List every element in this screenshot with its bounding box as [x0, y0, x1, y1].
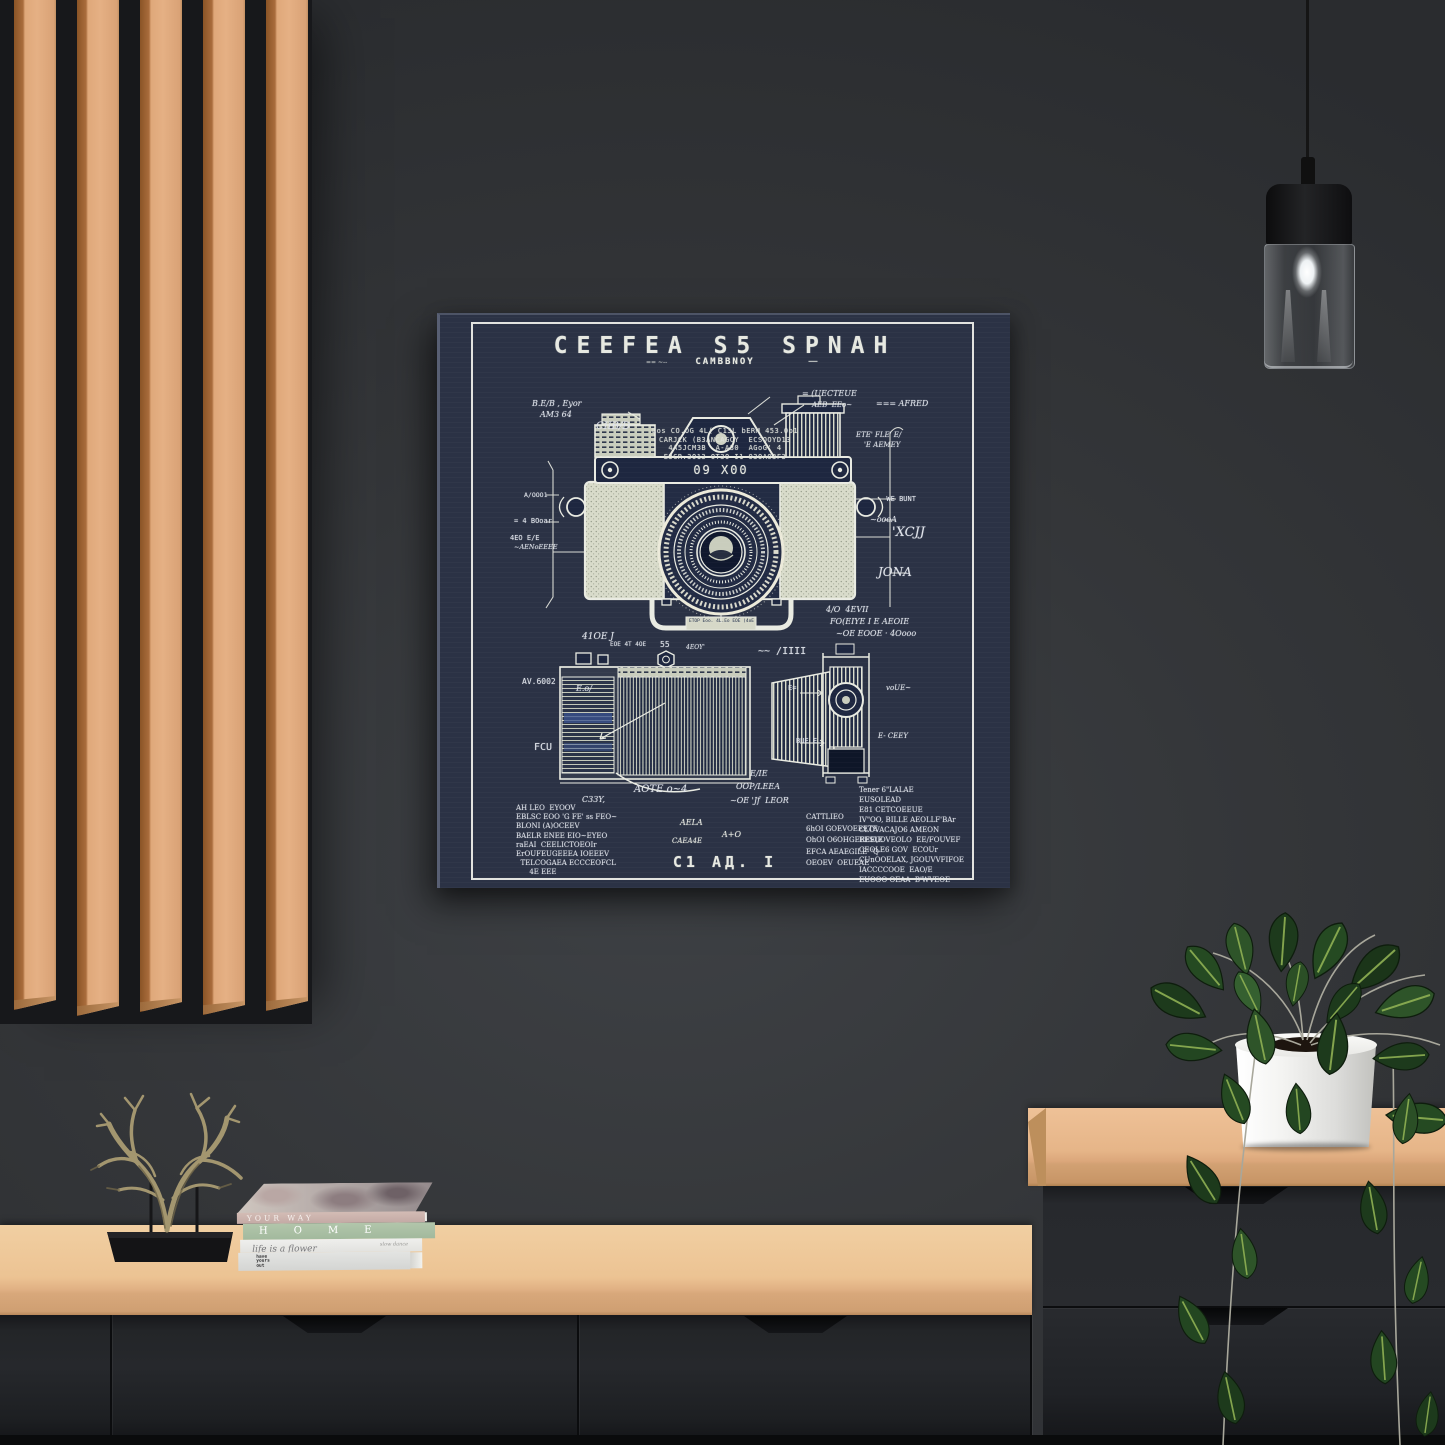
footer-line: IV"OO, BILLE AEOLLF'BAr: [859, 815, 964, 825]
poster-figure-mark: C1 AД. I: [665, 853, 785, 871]
poster-annotation: E=: [788, 684, 796, 692]
poster-annotation: = 4 BOoar: [514, 517, 552, 525]
poster-annotation: ~oooA: [870, 515, 897, 524]
poster-annotation: AEB EEo~: [812, 401, 852, 409]
poster-annotation: BUE E: [796, 737, 817, 745]
poster-annotation: ~AENoEEEE: [514, 543, 557, 551]
sideboard-drawer-fronts: [0, 1315, 1032, 1445]
lamp-cord: [1306, 0, 1309, 160]
footer-line: BAELR ENEE EIO~EYEO: [516, 832, 617, 841]
pot-soil: [1271, 1037, 1341, 1052]
book-top-cover: [237, 1182, 433, 1214]
footer-center-a: AELA: [680, 818, 703, 827]
lamp-glass-rim: [1264, 358, 1353, 368]
camera-blueprint-canvas: CEEFEA S5 SPNAH == ~-- CAMBBNOY — Los CO…: [437, 313, 1010, 888]
poster-annotation: 'XCJJ: [892, 525, 925, 540]
poster-footer-left-column: AH LEO EYOOVEBLSC EOO 'G FE' ss FEO~BLON…: [516, 804, 617, 878]
poster-title: CEEFEA S5 SPNAH: [440, 333, 1010, 359]
poster-annotation: 4EOY': [686, 644, 705, 651]
poster-annotation: E/IE: [750, 769, 768, 778]
poster-annotation: ETE' FLE' E/: [856, 431, 901, 439]
footer-line: Tener 6"LALAE: [859, 785, 964, 795]
right-cabinet-front: [1043, 1186, 1445, 1445]
poster-annotation: C33Y,: [582, 795, 605, 804]
wood-slat: [266, 0, 308, 1011]
room-photo: { "poster": { "title": "CEEFEA S5 SPNAH"…: [0, 0, 1445, 1445]
poster-annotation: AM3 64: [540, 410, 572, 419]
footer-line: EUSOLEAD: [859, 795, 964, 805]
poster-annotation: 55: [660, 640, 670, 649]
poster-annotation: JONA: [878, 565, 912, 579]
footer-line: 4E EEE: [516, 868, 617, 877]
drawer-handle-notch: [1185, 1187, 1288, 1204]
poster-annotation: EOE 4T 4OE: [610, 641, 646, 648]
poster-annotation: AV.6002: [522, 677, 556, 686]
lamp-cap: [1266, 184, 1352, 245]
wood-slat: [77, 0, 119, 1016]
poster-annotation: 4EO E/E: [510, 534, 540, 542]
lamp-bulb: [1292, 246, 1322, 298]
footer-line: BLONI (A)OCEEV: [516, 822, 617, 831]
wood-slat: [203, 0, 245, 1015]
poster-annotation: FO(EIYE I E AEOIE: [830, 617, 909, 626]
footer-line: CUnOOELAX, JGOUVVFIFOE: [859, 855, 964, 865]
poster-footer-right-column: Tener 6"LALAEEUSOLEADE81 CETCOEEUEIV"OO,…: [859, 785, 964, 885]
wood-slat-panel: [0, 0, 312, 1024]
poster-annotation: ~OE EOOE · 4Oooo: [836, 629, 916, 638]
poster-annotation: OOP/LEEA: [736, 782, 780, 791]
poster-annotation: === AFRED: [876, 399, 928, 408]
book-stack: YOUR WAY HOME life is a flower slow danc…: [237, 1182, 448, 1274]
poster-annotation: ~~ /IIII: [758, 646, 806, 657]
footer-line: EESUOVEOLO EE/FOUVEF: [859, 835, 964, 845]
footer-center-c: CAEA4E: [672, 837, 702, 845]
footer-line: E81 CETCOEEUE: [859, 805, 964, 815]
poster-subtitle: CAMBBNOY: [440, 357, 1010, 367]
plant-pot: [1233, 1033, 1379, 1147]
footer-line: CEOLE6 GOV ECOUr: [859, 845, 964, 855]
poster-annotation: A/OOO1: [524, 491, 547, 499]
wood-slat: [140, 0, 182, 1012]
footer-line: CLOVACAJO6 AMEON: [859, 825, 964, 835]
panel-seam: [1030, 1315, 1032, 1445]
footer-line: IACCCCOOE EAO/E: [859, 865, 964, 875]
pot-shadow: [1241, 1143, 1371, 1151]
poster-annotation: 4/O 4EVII: [826, 605, 868, 614]
book-spine: have yours out: [238, 1251, 410, 1271]
poster-annotation: AOTE o~4: [634, 784, 687, 795]
camera-bracket-label: ETOP Eoo. 4L.Eo EOE (4oE: [687, 619, 756, 624]
poster-annotation: E.o/: [576, 684, 592, 693]
poster-annotation: CIIB/D: [596, 421, 630, 432]
footer-center-b: A+O: [722, 830, 741, 839]
drawer-handle-notch: [283, 1316, 386, 1333]
poster-spec-lines: Los CO.OG 4L( C13L bERM 453.0o1CARJCK (B…: [440, 370, 1010, 461]
spec-line: 4A5JCM3B A-A30 AGoG' 4: [440, 444, 1010, 453]
poster-annotation: FCU: [534, 742, 552, 753]
poster-annotation: 'E AEMEY: [864, 441, 900, 449]
lamp-neck: [1301, 157, 1315, 187]
poster-annotation: - WE BUNT: [878, 495, 916, 503]
drawer-seam: [577, 1315, 579, 1445]
footer-line: raEAI CEELICTOEOIr: [516, 841, 617, 850]
spec-line: E3CR.3O13 OT3O I1 O3OAO3F3: [440, 453, 1010, 462]
poster-annotation: B.E/B , Eyor: [532, 399, 581, 408]
wood-slat: [14, 0, 56, 1010]
drawer-handle-notch: [1185, 1308, 1288, 1325]
book-spine: HOME: [243, 1222, 435, 1240]
footer-line: EUOOO OEAA B'WVEOE: [859, 875, 964, 885]
footer-line: AH LEO EYOOV: [516, 804, 617, 813]
book-spine-text: have yours out: [256, 1255, 270, 1269]
poster-annotation: = (UECTEUE: [802, 389, 857, 398]
poster-dash: —: [808, 356, 818, 367]
spec-line: CARJCK (B3ANCAGCY ECSOOYD13: [440, 436, 1010, 445]
floor-shadow: [0, 1435, 1445, 1445]
book-spine-note: slow dance: [380, 1238, 408, 1251]
poster-annotation: ~OE 'Jf LEOR: [730, 796, 789, 805]
poster-annotation: voUE~: [886, 684, 911, 692]
drawer-handle-notch: [744, 1316, 847, 1333]
camera-top-plate-label: 09 X00: [666, 463, 776, 477]
spec-line: Los CO.OG 4L( C13L bERM 453.0o1: [440, 427, 1010, 436]
poster-annotation: E- CEEY: [878, 732, 908, 740]
sideboard-countertop: [0, 1225, 1032, 1315]
panel-seam: [110, 1315, 112, 1445]
footer-line: ErOUFEUGEEEA IOEEEV: [516, 850, 617, 859]
drawer-seam: [1043, 1306, 1445, 1308]
